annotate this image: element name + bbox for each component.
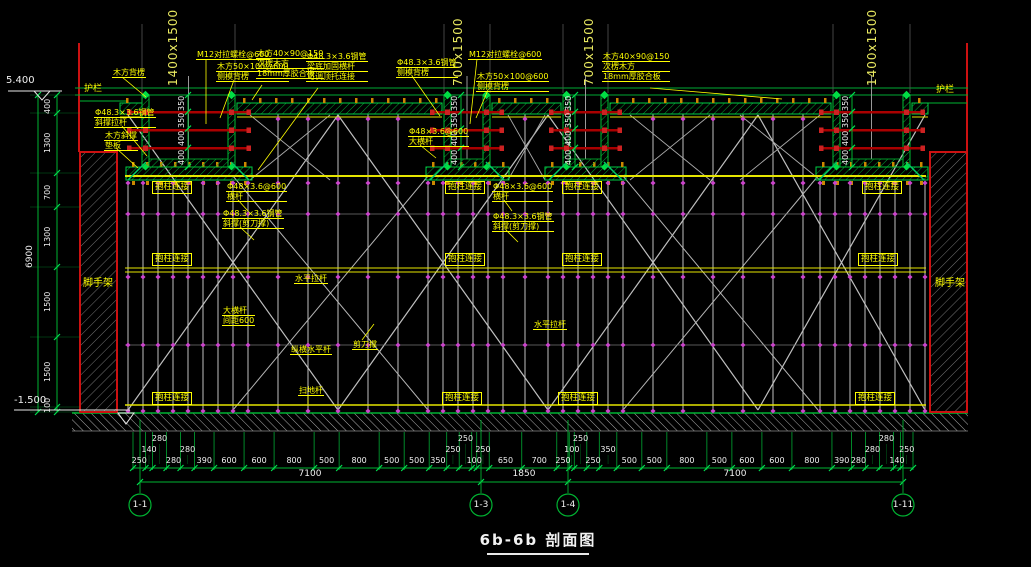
column-tie-box-label: 抱柱连接 — [152, 181, 192, 194]
bottom-dim-label: 140 — [141, 446, 156, 454]
bottom-dim-label: 500 — [647, 457, 662, 465]
axis-bubble: 1-3 — [466, 500, 496, 510]
axis-bubble: 1-4 — [553, 500, 583, 510]
left-dim-label: 1500 — [44, 362, 52, 382]
left-dim-label: 1300 — [44, 133, 52, 153]
bottom-dim-label: 140 — [889, 457, 904, 465]
elevation-top-label: 5.400 — [6, 76, 35, 86]
beam-dim-label: 350 — [451, 96, 459, 111]
column-tie-box-label: 抱柱连接 — [152, 392, 192, 405]
callout-label: M12对拉螺栓@600 — [468, 50, 542, 60]
beam-dim-label: 350 — [178, 113, 186, 128]
title-underline — [487, 553, 589, 555]
guardrail-label-left: 护栏 — [84, 84, 102, 94]
column-tie-box-label: 抱柱连接 — [562, 181, 602, 194]
bottom-dim-label: 280 — [166, 457, 181, 465]
beam-dim-label: 350 — [565, 96, 573, 111]
beam-dim-label: 350 — [842, 96, 850, 111]
bottom-dim-label: 280 — [180, 446, 195, 454]
bottom-dim-label: 100 — [564, 446, 579, 454]
bottom-dim-label: 390 — [197, 457, 212, 465]
bottom-dim-label: 800 — [286, 457, 301, 465]
column-tie-box-label: 抱柱连接 — [152, 253, 192, 266]
callout-label: Φ48×3.6@600大横杆 — [408, 127, 469, 147]
bottom-dim-label: 500 — [409, 457, 424, 465]
callout-label: Φ48×3.6@600横杆 — [226, 182, 287, 202]
beam-dim-label: 400 — [565, 131, 573, 146]
bottom-dim-label: 280 — [879, 435, 894, 443]
left-dim-total: 6900 — [26, 245, 35, 268]
beam-dim-label: 400 — [178, 131, 186, 146]
callout-label: Φ48.3×3.6钢管斜撑拉杆 — [94, 108, 156, 128]
column-tie-box-label: 抱柱连接 — [855, 392, 895, 405]
bottom-dim-label: 700 — [532, 457, 547, 465]
drawing-title: 6b-6b 剖面图 — [458, 529, 618, 550]
beam-size-label: 1400x1500 — [167, 9, 179, 86]
callout-label: 纵横水平杆 — [290, 345, 332, 355]
bottom-dim-label: 280 — [865, 446, 880, 454]
bottom-dim-label: 280 — [152, 435, 167, 443]
scaffold-wall-label-right: 脚手架 — [935, 278, 965, 289]
guardrail-label-right: 护栏 — [936, 85, 954, 95]
bottom-dim-label: 800 — [679, 457, 694, 465]
callout-label: Φ48.3×3.6钢管斜撑(剪刀撑) — [222, 209, 284, 229]
callout-label: 木方50×100@600侧模背楞 — [476, 72, 549, 92]
left-dim-label: 400 — [44, 99, 52, 114]
total-dim-label: 1850 — [513, 470, 536, 479]
bottom-dim-label: 800 — [804, 457, 819, 465]
callout-label: Φ48.3×3.6钢管侧模背楞 — [396, 58, 458, 78]
scaffold-wall-label-left: 脚手架 — [83, 278, 113, 289]
callout-label: 剪刀撑 — [352, 340, 378, 350]
column-tie-box-label: 抱柱连接 — [445, 253, 485, 266]
axis-bubble: 1-1 — [125, 500, 155, 510]
bottom-dim-label: 600 — [221, 457, 236, 465]
callout-label: Φ48.3×3.6钢管梁底加固横杆可调顶托连接 — [306, 52, 368, 82]
left-dim-label: 1500 — [44, 292, 52, 312]
bottom-dim-label: 250 — [573, 435, 588, 443]
bottom-dim-label: 600 — [251, 457, 266, 465]
bottom-dim-label: 250 — [899, 446, 914, 454]
beam-size-label: 1400x1500 — [866, 9, 878, 86]
bottom-dim-label: 500 — [384, 457, 399, 465]
section-drawing-root: 3503504004001400x1500350350400400700x150… — [0, 0, 1031, 567]
callout-label: 水平拉杆 — [533, 320, 567, 330]
beam-size-label: 700x1500 — [583, 17, 595, 86]
bottom-dim-label: 250 — [585, 457, 600, 465]
callout-label: 木方40×90@150次楞木方18mm厚胶合板 — [602, 52, 670, 82]
column-tie-box-label: 抱柱连接 — [862, 181, 902, 194]
beam-dim-label: 400 — [178, 150, 186, 165]
column-tie-box-label: 抱柱连接 — [558, 392, 598, 405]
bottom-dim-label: 390 — [834, 457, 849, 465]
beam-dim-label: 400 — [451, 150, 459, 165]
bottom-dim-label: 600 — [769, 457, 784, 465]
beam-dim-label: 350 — [451, 113, 459, 128]
bottom-dim-label: 800 — [352, 457, 367, 465]
bottom-dim-label: 500 — [319, 457, 334, 465]
callout-label: Φ48×3.6@600横杆 — [492, 182, 553, 202]
callout-label: 水平拉杆 — [294, 274, 328, 284]
total-dim-label: 7100 — [299, 470, 322, 479]
bottom-dim-label: 600 — [739, 457, 754, 465]
beam-dim-label: 350 — [842, 113, 850, 128]
left-dim-label: 1300 — [44, 227, 52, 247]
bottom-dim-label: 500 — [622, 457, 637, 465]
elevation-bottom-label: -1.500 — [14, 396, 46, 406]
left-dim-label: 700 — [44, 185, 52, 200]
bottom-dim-label: 100 — [467, 457, 482, 465]
bottom-dim-label: 280 — [851, 457, 866, 465]
bottom-dim-label: 500 — [712, 457, 727, 465]
bottom-dim-label: 250 — [555, 457, 570, 465]
callout-label: 木方背楞 — [112, 68, 146, 78]
column-tie-box-label: 抱柱连接 — [858, 253, 898, 266]
bottom-dim-label: 250 — [132, 457, 147, 465]
beam-dim-label: 400 — [842, 131, 850, 146]
bottom-dim-label: 250 — [445, 446, 460, 454]
callout-label: 大横杆间距600 — [222, 306, 255, 326]
beam-dim-label: 350 — [178, 96, 186, 111]
total-dim-label: 7100 — [724, 470, 747, 479]
callout-label: Φ48.3×3.6钢管斜撑(剪刀撑) — [492, 212, 554, 232]
beam-dim-label: 350 — [565, 113, 573, 128]
column-tie-box-label: 抱柱连接 — [442, 392, 482, 405]
axis-bubble: 1-11 — [888, 500, 918, 510]
beam-dim-label: 400 — [842, 150, 850, 165]
column-tie-box-label: 抱柱连接 — [562, 253, 602, 266]
bottom-dim-label: 250 — [475, 446, 490, 454]
bottom-dim-label: 250 — [458, 435, 473, 443]
bottom-dim-label: 350 — [600, 446, 615, 454]
callout-label: 扫地杆 — [298, 386, 324, 396]
beam-dim-label: 400 — [565, 150, 573, 165]
callout-label: 木方斜撑垫板 — [104, 131, 138, 151]
bottom-dim-label: 650 — [498, 457, 513, 465]
bottom-dim-label: 350 — [430, 457, 445, 465]
column-tie-box-label: 抱柱连接 — [445, 181, 485, 194]
